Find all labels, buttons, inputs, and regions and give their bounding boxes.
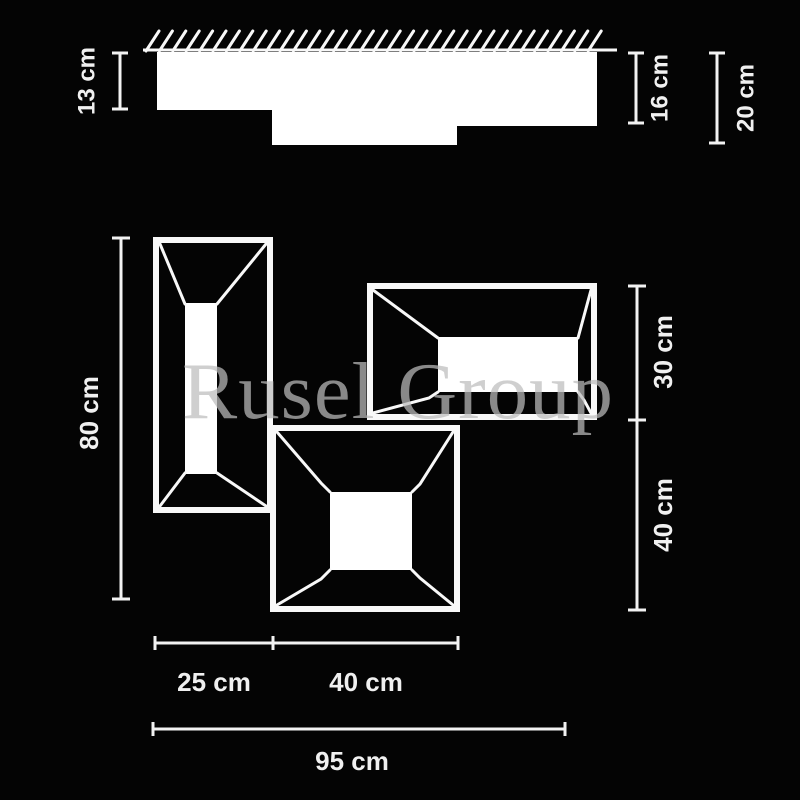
- dimension-16cm: 16 cm: [628, 53, 673, 123]
- dimension-13cm-label: 13 cm: [73, 47, 100, 115]
- dimension-95cm-label: 95 cm: [315, 746, 389, 776]
- side-view: 13 cm 16 cm 20 cm: [73, 31, 759, 145]
- dimension-30cm-label: 30 cm: [648, 315, 678, 389]
- front-view: 80 cm 30 cm 40 cm 25 cm 40 cm: [74, 238, 678, 776]
- dimension-95cm: 95 cm: [153, 722, 565, 776]
- dimension-20cm: 20 cm: [709, 53, 759, 143]
- dimension-13cm: 13 cm: [73, 47, 128, 115]
- dimension-40cm-right: 40 cm: [628, 420, 678, 610]
- dimension-20cm-label: 20 cm: [732, 64, 759, 132]
- dimension-bottom-row: 25 cm 40 cm: [155, 636, 458, 697]
- dimension-25cm-label: 25 cm: [177, 667, 251, 697]
- dimension-30cm: 30 cm: [628, 286, 678, 420]
- dimension-16cm-label: 16 cm: [646, 54, 673, 122]
- panel-bottom-light: [330, 492, 412, 570]
- side-profile-shape: [157, 52, 597, 145]
- ceiling-hatch-lines: [146, 31, 601, 51]
- panel-bottom: [273, 428, 457, 609]
- dimension-40cm-right-label: 40 cm: [648, 478, 678, 552]
- dimension-80cm-label: 80 cm: [74, 376, 104, 450]
- dimension-40cm-bottom-label: 40 cm: [329, 667, 403, 697]
- watermark-text: Rusel Group: [182, 348, 614, 436]
- lamp-dimension-diagram: 13 cm 16 cm 20 cm: [0, 0, 800, 800]
- dimension-80cm: 80 cm: [74, 238, 130, 599]
